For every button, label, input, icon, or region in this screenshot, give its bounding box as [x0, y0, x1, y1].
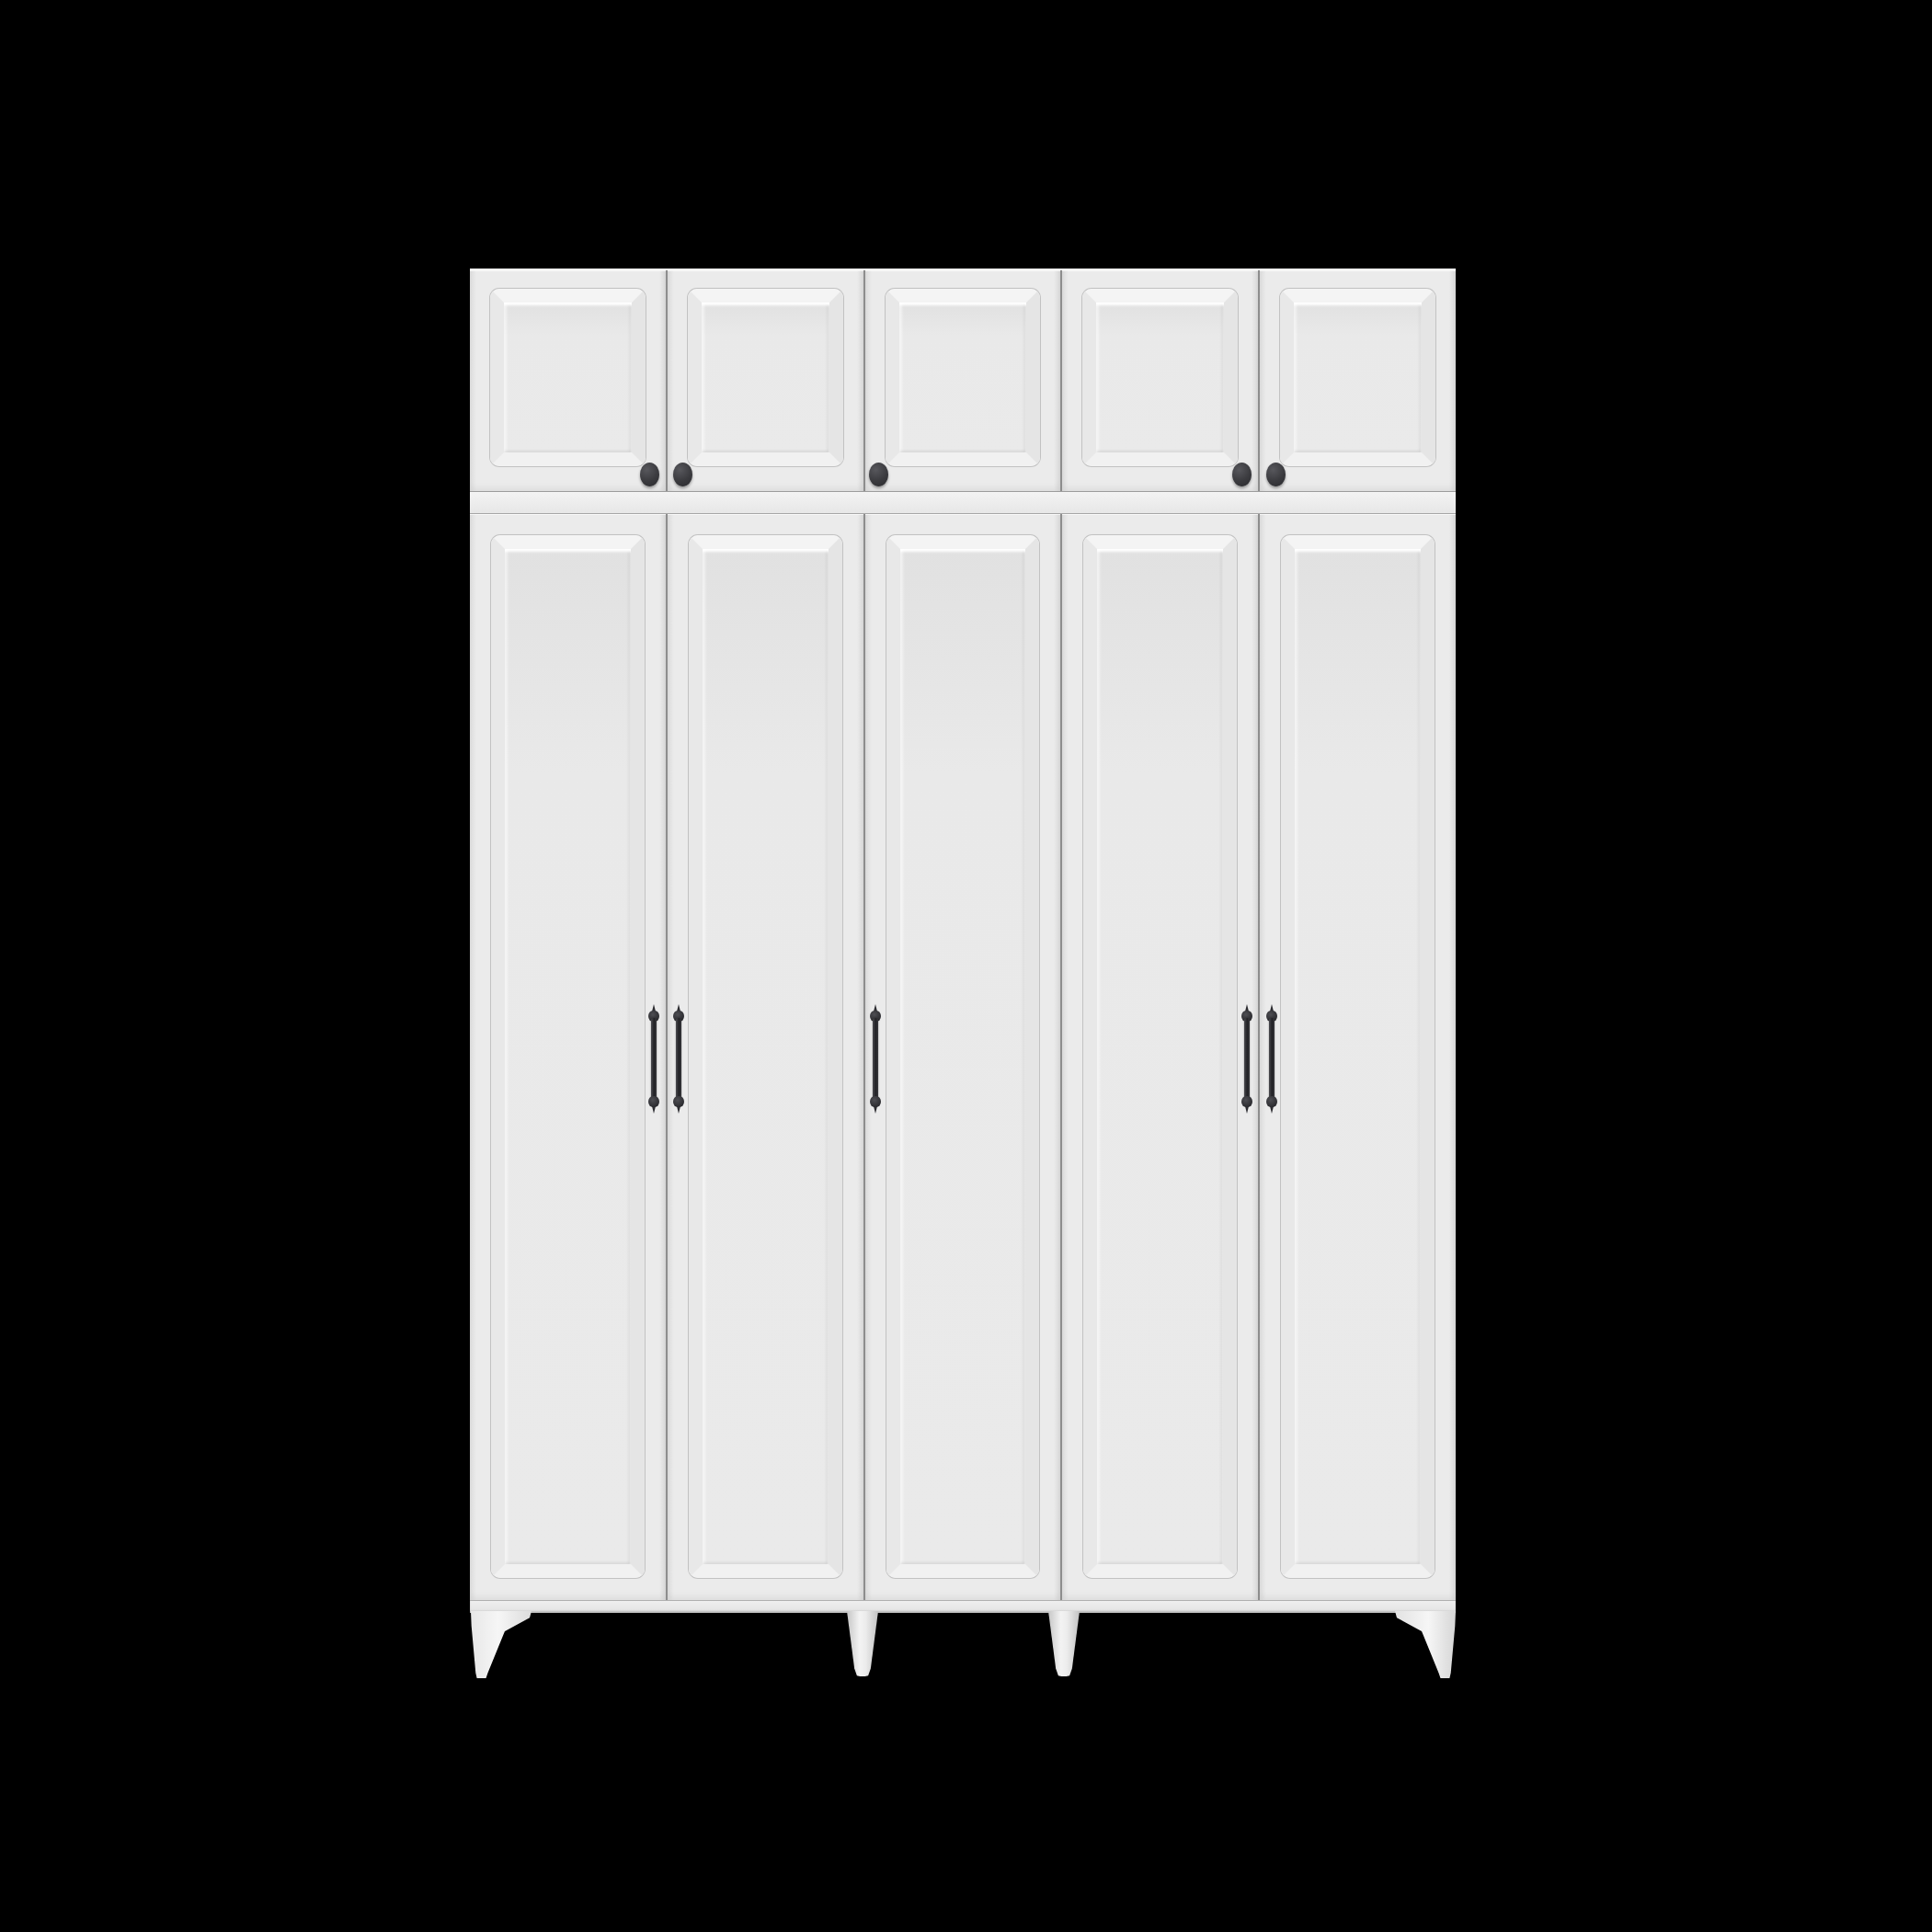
handle-bottom-finial	[1270, 1106, 1274, 1114]
upper-door-3	[865, 270, 1061, 491]
handle-bottom-cap	[673, 1096, 684, 1107]
lower-door-row	[470, 514, 1456, 1600]
upper-door-2	[668, 270, 863, 491]
upper-door-4	[1062, 270, 1258, 491]
door-handle-5	[1266, 1004, 1277, 1114]
door-panel	[1281, 535, 1435, 1578]
lower-door-2	[668, 514, 863, 1600]
lower-door-4	[1062, 514, 1258, 1600]
handle-bar	[1269, 1018, 1275, 1100]
leg-front-right	[1395, 1611, 1456, 1678]
leg-middle-2	[1048, 1611, 1080, 1676]
lower-door-3	[865, 514, 1061, 1600]
handle-bottom-finial	[652, 1106, 656, 1114]
door-knob-5	[1266, 463, 1286, 486]
door-knob-1	[640, 463, 659, 486]
upper-door-5	[1260, 270, 1456, 491]
door-panel	[1280, 289, 1435, 466]
handle-bar	[873, 1018, 878, 1100]
door-panel	[886, 535, 1040, 1578]
door-knob-3	[869, 463, 888, 486]
lower-door-5	[1260, 514, 1456, 1600]
door-knob-4	[1232, 463, 1252, 486]
door-knob-2	[673, 463, 692, 486]
upper-door-1	[470, 270, 666, 491]
leg-middle-1	[847, 1611, 878, 1676]
door-panel	[689, 535, 842, 1578]
door-panel	[490, 289, 646, 466]
wardrobe	[470, 269, 1456, 1613]
handle-bottom-cap	[1241, 1096, 1252, 1107]
door-handle-2	[673, 1004, 684, 1114]
handle-bottom-finial	[677, 1106, 680, 1114]
divider-band	[470, 491, 1456, 514]
lower-door-1	[470, 514, 666, 1600]
leg-front-left	[471, 1611, 532, 1678]
handle-bottom-cap	[648, 1096, 659, 1107]
handle-bottom-finial	[1245, 1106, 1249, 1114]
door-handle-3	[870, 1004, 881, 1114]
door-panel	[491, 535, 645, 1578]
handle-bar	[651, 1018, 657, 1100]
product-photo-background	[0, 0, 1932, 1932]
handle-bottom-cap	[870, 1096, 881, 1107]
door-panel	[886, 289, 1041, 466]
door-handle-1	[648, 1004, 659, 1114]
upper-cabinet-row	[470, 269, 1456, 491]
handle-bar	[1244, 1018, 1250, 1100]
base-rail	[470, 1600, 1456, 1613]
door-panel	[688, 289, 843, 466]
door-panel	[1082, 289, 1238, 466]
door-handle-4	[1241, 1004, 1252, 1114]
door-panel	[1083, 535, 1237, 1578]
handle-bar	[676, 1018, 681, 1100]
handle-bottom-finial	[874, 1106, 877, 1114]
handle-bottom-cap	[1266, 1096, 1277, 1107]
